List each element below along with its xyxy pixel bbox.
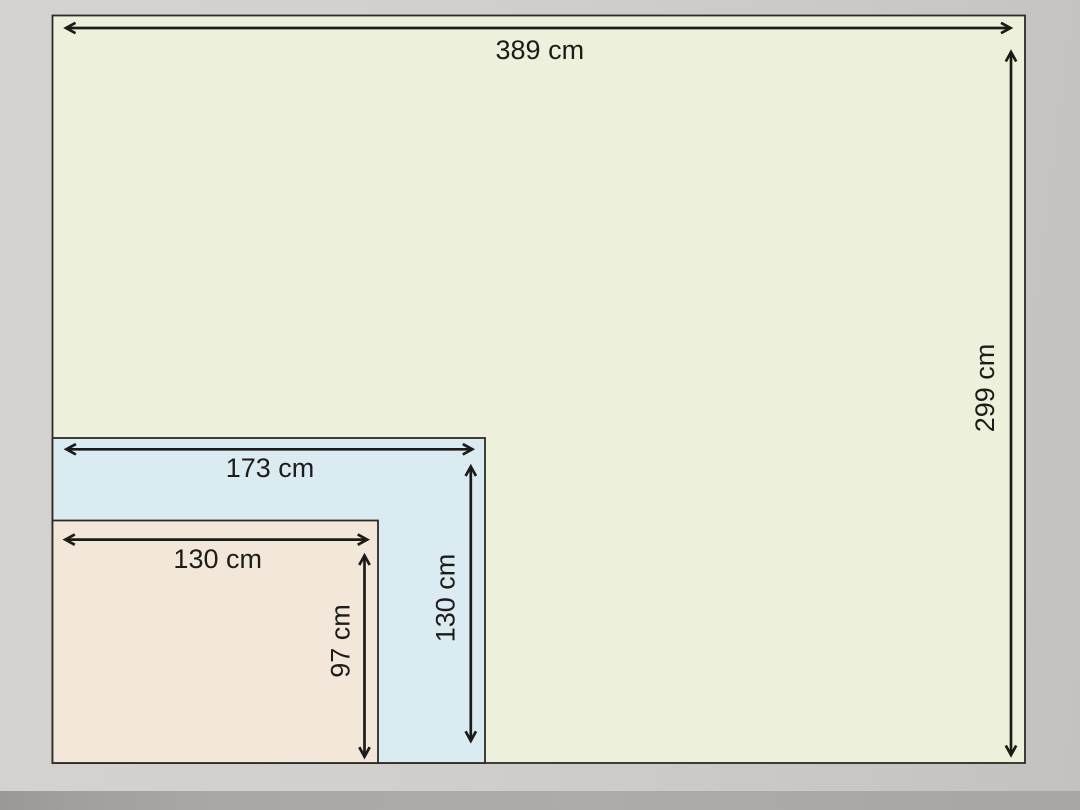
svg-text:130 cm: 130 cm bbox=[173, 544, 262, 574]
svg-text:389 cm: 389 cm bbox=[496, 35, 585, 65]
svg-text:299 cm: 299 cm bbox=[970, 344, 1000, 433]
svg-text:173 cm: 173 cm bbox=[226, 453, 315, 483]
svg-text:97 cm: 97 cm bbox=[326, 604, 356, 678]
svg-text:130 cm: 130 cm bbox=[431, 554, 461, 643]
